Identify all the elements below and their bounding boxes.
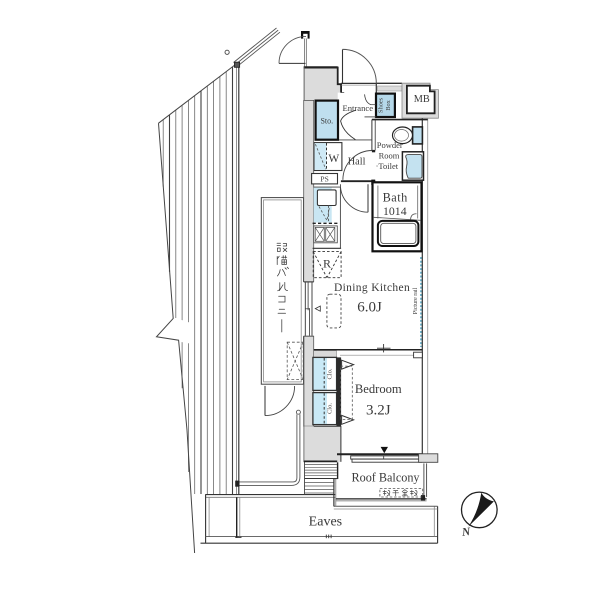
svg-text:Roof Balcony: Roof Balcony <box>351 471 420 485</box>
svg-text:PS: PS <box>320 174 328 183</box>
svg-text:Clo.: Clo. <box>326 403 333 414</box>
svg-text:Hall: Hall <box>348 157 366 168</box>
svg-text:W: W <box>328 153 339 165</box>
svg-text:Bath: Bath <box>383 190 408 204</box>
svg-text:3.2J: 3.2J <box>366 402 391 418</box>
svg-text:1014: 1014 <box>383 204 407 218</box>
svg-text:Picture rail: Picture rail <box>413 287 419 314</box>
svg-text:Entrance: Entrance <box>343 103 374 113</box>
svg-text:Sto.: Sto. <box>320 116 333 125</box>
svg-text:6.0J: 6.0J <box>357 300 382 316</box>
svg-text:Dining Kitchen: Dining Kitchen <box>334 282 410 294</box>
svg-text:Room: Room <box>379 150 400 160</box>
svg-text:MB: MB <box>414 94 430 105</box>
svg-text:Shoes: Shoes <box>378 97 385 113</box>
svg-text:Clo.: Clo. <box>326 368 333 379</box>
svg-text:Bedroom: Bedroom <box>355 382 402 396</box>
svg-text:R: R <box>323 257 331 271</box>
svg-text:·Toilet: ·Toilet <box>376 161 399 171</box>
svg-text:Eaves: Eaves <box>309 515 342 530</box>
svg-text:Box: Box <box>385 99 392 110</box>
